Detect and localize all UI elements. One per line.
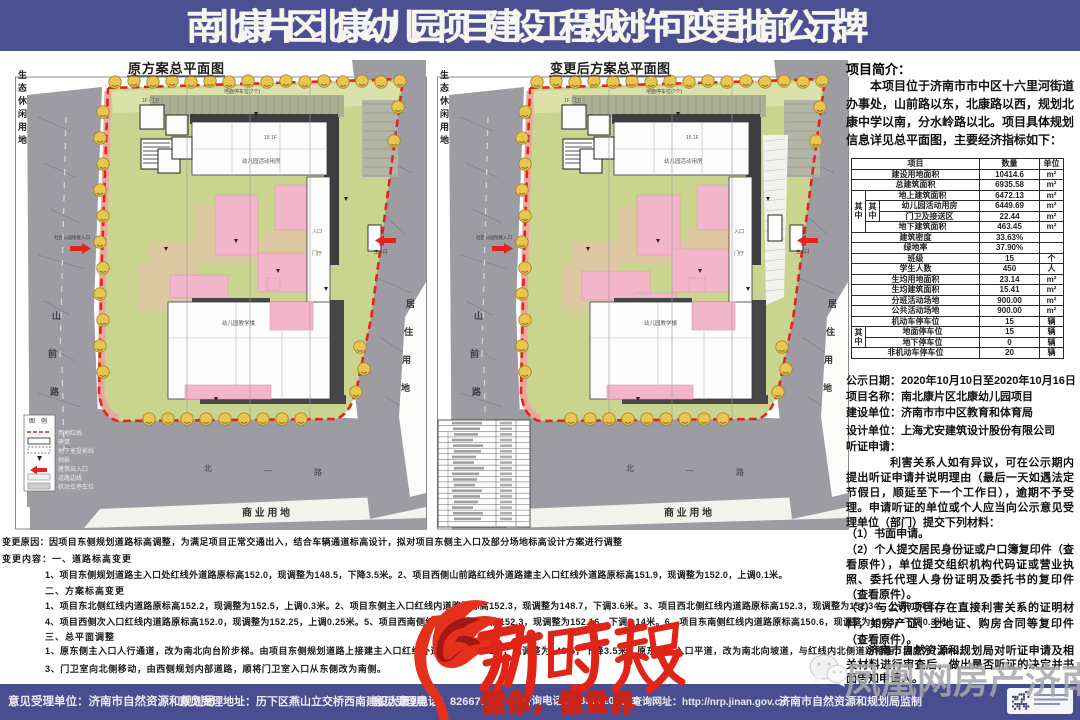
svg-text:路: 路	[472, 386, 482, 397]
svg-text:路: 路	[314, 467, 322, 477]
svg-text:幼儿园活动用房: 幼儿园活动用房	[664, 157, 703, 165]
svg-text:山: 山	[474, 310, 483, 321]
svg-text:住: 住	[826, 326, 835, 337]
svg-text:地下室投影线: 地下室投影线	[58, 447, 94, 455]
svg-text:南北康片区北康幼儿园项目建设工程规划许可变更批前公示牌: 南北康片区北康幼儿园项目建设工程规划许可变更批前公示牌	[187, 6, 869, 47]
svg-text:用: 用	[823, 355, 833, 365]
svg-text:生: 生	[440, 69, 449, 80]
svg-text:1F 门卫: 1F 门卫	[564, 97, 581, 104]
svg-text:态: 态	[440, 82, 449, 93]
svg-text:社区公园衔接入口: 社区公园衔接入口	[476, 234, 512, 241]
svg-text:前: 前	[48, 348, 57, 359]
svg-text:15 1F: 15 1F	[686, 135, 699, 141]
svg-text:15 1F: 15 1F	[264, 135, 277, 141]
svg-text:前: 前	[470, 348, 479, 359]
svg-text:入口: 入口	[734, 229, 744, 235]
svg-text:地: 地	[401, 382, 410, 393]
svg-text:地面停车位(7个): 地面停车位(7个)	[646, 88, 682, 95]
svg-text:用: 用	[401, 355, 411, 365]
svg-text:门厅: 门厅	[312, 250, 322, 257]
svg-text:休: 休	[439, 95, 450, 106]
svg-text:幼儿园活动用房: 幼儿园活动用房	[242, 157, 281, 165]
svg-text:幼儿园教学楼: 幼儿园教学楼	[644, 319, 678, 327]
svg-text:生: 生	[18, 69, 27, 80]
svg-text:住: 住	[404, 326, 413, 337]
svg-text:门厅: 门厅	[734, 250, 744, 257]
svg-text:休: 休	[17, 95, 28, 106]
svg-text:主入口: 主入口	[374, 248, 388, 255]
svg-text:地: 地	[18, 134, 27, 145]
svg-text:居: 居	[828, 299, 837, 309]
svg-text:地面停车位(7个): 地面停车位(7个)	[224, 88, 260, 95]
svg-text:—: —	[686, 466, 694, 475]
svg-text:闲: 闲	[440, 108, 449, 119]
svg-text:1F 门卫: 1F 门卫	[142, 97, 159, 104]
svg-text:北: 北	[626, 464, 634, 473]
svg-text:建筑出入口: 建筑出入口	[58, 465, 88, 473]
svg-text:树影: 树影	[58, 456, 70, 464]
svg-text:用地红线: 用地红线	[58, 429, 82, 437]
svg-text:幼儿园教学楼: 幼儿园教学楼	[222, 319, 256, 327]
svg-text:用: 用	[439, 122, 449, 132]
svg-text:地: 地	[440, 134, 449, 145]
svg-text:机动车停车位: 机动车停车位	[58, 483, 94, 491]
svg-text:地: 地	[823, 382, 832, 393]
svg-text:道路边线: 道路边线	[58, 474, 82, 482]
svg-text:—: —	[264, 466, 272, 475]
svg-text:建筑: 建筑	[58, 438, 70, 446]
svg-text:原方案总平面图: 原方案总平面图	[128, 61, 224, 76]
svg-text:路: 路	[736, 467, 744, 477]
svg-text:变更后方案总平面图: 变更后方案总平面图	[550, 61, 670, 76]
svg-text:入口: 入口	[312, 229, 322, 235]
svg-text:路: 路	[50, 386, 60, 397]
svg-text:社区公园衔接入口: 社区公园衔接入口	[54, 234, 90, 241]
svg-text:居: 居	[406, 299, 415, 309]
svg-text:用: 用	[17, 122, 27, 132]
svg-text:山: 山	[52, 310, 61, 321]
svg-text:闲: 闲	[18, 108, 27, 119]
svg-text:态: 态	[18, 82, 27, 93]
svg-text:主入口: 主入口	[796, 248, 810, 255]
svg-text:懂你，懂世界: 懂你，懂世界	[481, 690, 637, 716]
svg-text:北: 北	[204, 464, 212, 473]
